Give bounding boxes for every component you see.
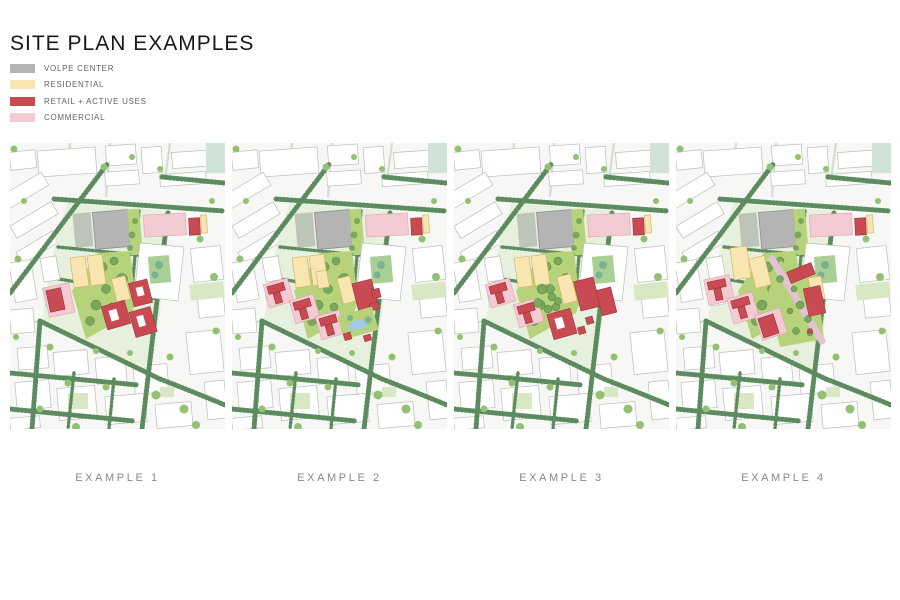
legend-label-residential: RESIDENTIAL (44, 80, 104, 89)
site-plan-map-example-1 (10, 143, 225, 429)
site-plan-examples-slide: SITE PLAN EXAMPLES VOLPE CENTER RESIDENT… (0, 0, 900, 600)
example-1-label: EXAMPLE 1 (75, 472, 160, 484)
example-4-label: EXAMPLE 4 (741, 472, 826, 484)
legend-swatch-commercial (10, 113, 35, 122)
legend-swatch-retail (10, 97, 35, 106)
panel-example-1: EXAMPLE 1 (10, 143, 225, 484)
panel-example-3: EXAMPLE 3 (454, 143, 669, 484)
legend-row-retail: RETAIL + ACTIVE USES (10, 93, 147, 110)
site-plan-map-example-3 (454, 143, 669, 429)
legend-row-volpe: VOLPE CENTER (10, 60, 147, 77)
example-3-label: EXAMPLE 3 (519, 472, 604, 484)
site-plan-map-example-2 (232, 143, 447, 429)
legend: VOLPE CENTER RESIDENTIAL RETAIL + ACTIVE… (10, 60, 147, 126)
panel-example-4: EXAMPLE 4 (676, 143, 891, 484)
legend-row-residential: RESIDENTIAL (10, 77, 147, 94)
page-title: SITE PLAN EXAMPLES (10, 32, 254, 56)
site-plan-map-example-4 (676, 143, 891, 429)
maps-row: EXAMPLE 1 (10, 143, 891, 484)
legend-label-retail: RETAIL + ACTIVE USES (44, 97, 147, 106)
legend-swatch-volpe (10, 64, 35, 73)
legend-label-volpe: VOLPE CENTER (44, 64, 114, 73)
panel-example-2: EXAMPLE 2 (232, 143, 447, 484)
example-2-label: EXAMPLE 2 (297, 472, 382, 484)
legend-row-commercial: COMMERCIAL (10, 110, 147, 127)
legend-label-commercial: COMMERCIAL (44, 113, 105, 122)
legend-swatch-residential (10, 80, 35, 89)
